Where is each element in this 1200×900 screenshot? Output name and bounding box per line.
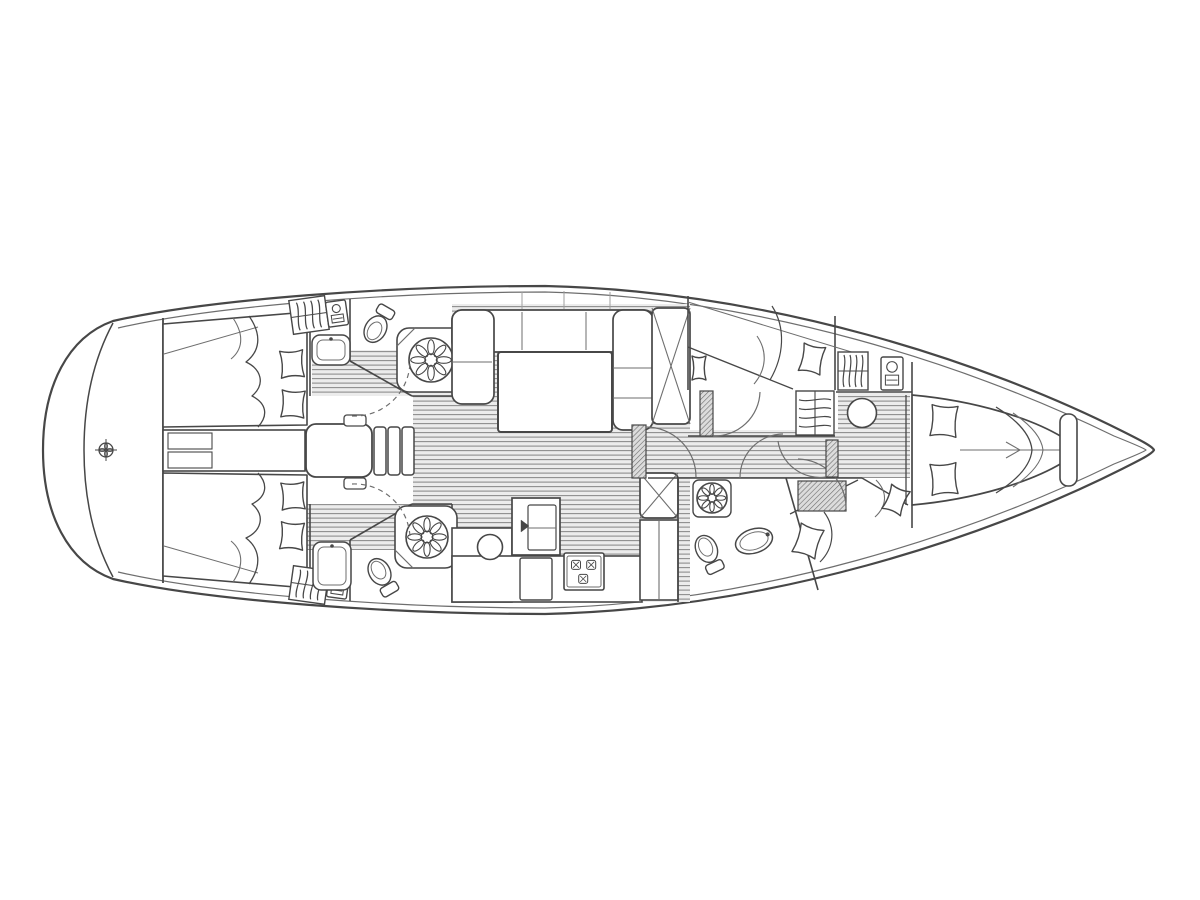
washbasin (312, 335, 350, 365)
pillow (280, 522, 305, 551)
shower-drain (697, 483, 727, 513)
shelf-louver (796, 391, 834, 435)
companionway-tread (388, 427, 400, 475)
wardrobe (652, 308, 690, 424)
door-panel (700, 391, 713, 436)
anchor-locker (1060, 414, 1077, 486)
pillow (930, 463, 958, 496)
door-panel (798, 481, 846, 511)
pillow (930, 405, 958, 438)
engine-compartment (163, 430, 305, 471)
cabinet-unit (881, 357, 903, 390)
salon-settee-right (613, 310, 653, 430)
vanity-stool (848, 399, 877, 428)
salon-table (498, 352, 612, 432)
shelf-louver (838, 352, 868, 390)
pillow (281, 390, 305, 418)
companionway-tread (374, 427, 386, 475)
galley-tall-unit (512, 498, 560, 555)
door-panel (632, 425, 646, 478)
galley-cabinet (520, 558, 552, 600)
locker-unit (325, 300, 348, 328)
yacht-layout-svg (0, 0, 1200, 900)
washbasin (313, 542, 351, 590)
shower-drain (406, 516, 448, 558)
pillow (280, 350, 305, 379)
pillow (281, 482, 305, 510)
door-panel (826, 440, 838, 477)
pillow (692, 356, 706, 380)
salon-settee-left (452, 310, 494, 404)
galley-fridge (640, 473, 678, 518)
locker-louver (289, 296, 329, 335)
galley-sink (478, 535, 503, 560)
yacht-plan-canvas (0, 0, 1200, 900)
companionway-tread (402, 427, 414, 475)
shower-drain (409, 338, 453, 382)
companionway-platform (306, 424, 372, 477)
galley-stove (564, 553, 604, 590)
